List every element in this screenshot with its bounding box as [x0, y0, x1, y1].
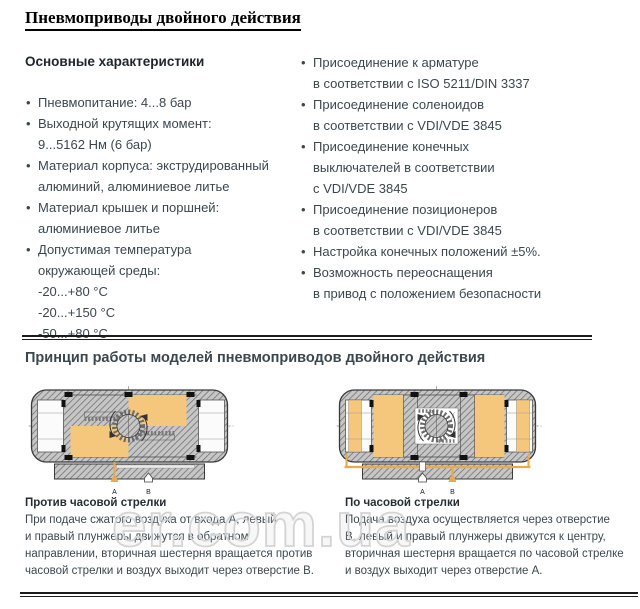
- characteristics-left-column: Основные характеристики Пневмопитание: 4…: [25, 52, 300, 344]
- bullet-item: Материал корпуса: экструдированный алюми…: [25, 155, 300, 197]
- characteristics-heading: Основные характеристики: [25, 54, 300, 69]
- separator-rule: [22, 335, 592, 340]
- bullet-item: Настройка конечных положений ±5%.: [300, 241, 625, 262]
- bullet-line: Материал крышек и поршней:: [38, 197, 300, 218]
- separator-rule: [20, 592, 638, 597]
- bullet-line: в соответствии с VDI/VDE 3845: [313, 115, 625, 136]
- bullet-line: -20...+150 °C: [38, 302, 300, 323]
- bullet-item: Выходной крутящих момент: 9...5162 Нм (6…: [25, 113, 300, 155]
- bullet-line: с VDI/VDE 3845: [313, 178, 625, 199]
- bullet-line: Допустимая температура: [38, 239, 300, 260]
- caption-line: вторичная шестерня вращается по часовой …: [345, 546, 637, 563]
- bullet-line: в соответствии с VDI/VDE 3845: [313, 220, 625, 241]
- bullet-line: Присоединение позиционеров: [313, 199, 625, 220]
- principle-heading: Принцип работы моделей пневмоприводов дв…: [25, 350, 485, 366]
- bullet-line: в привод с положением безопасности: [313, 283, 625, 304]
- caption-title: По часовой стрелки: [345, 497, 637, 509]
- caption-counterclockwise: Против часовой стрелки При подаче сжатог…: [25, 497, 333, 580]
- port-label-b: B: [146, 489, 151, 496]
- bullet-item: Возможность переоснащения в привод с пол…: [300, 262, 625, 304]
- caption-line: часовой стрелки и воздух выходит через о…: [25, 563, 333, 580]
- page-title-text: Пневмоприводы двойного действия: [25, 8, 301, 31]
- caption-line: В, левый и правый плунжеры движутся к це…: [345, 529, 637, 546]
- caption-line: направлении, вторичная шестерня вращаетс…: [25, 546, 333, 563]
- caption-line: и правый плунжеры движутся в обратном: [25, 529, 333, 546]
- characteristics-section: Основные характеристики Пневмопитание: 4…: [25, 52, 625, 344]
- bullet-item: Присоединение конечных выключателей в со…: [300, 136, 625, 199]
- bullet-line: в соответствии с ISO 5211/DIN 3337: [313, 73, 625, 94]
- caption-line: При подаче сжатого воздуха от входа А, л…: [25, 512, 333, 529]
- caption-clockwise: По часовой стрелки Подача воздуха осущес…: [345, 497, 637, 580]
- port-label-a: A: [112, 489, 117, 496]
- bullet-line: Настройка конечных положений ±5%.: [313, 241, 625, 262]
- bullet-line: окружающей среды:: [38, 260, 300, 281]
- bullet-line: -20...+80 °C: [38, 281, 300, 302]
- bullet-line: Присоединение к арматуре: [313, 52, 625, 73]
- bullet-item: Присоединение позиционеров в соответстви…: [300, 199, 625, 241]
- bullet-item: Допустимая температура окружающей среды:…: [25, 239, 300, 344]
- bullet-item: Материал крышек и поршней: алюминиевое л…: [25, 197, 300, 239]
- bullet-item: Присоединение к арматуре в соответствии …: [300, 52, 625, 94]
- bullet-line: алюминий, алюминиевое литье: [38, 176, 300, 197]
- caption-line: Подача воздуха осуществляется через отве…: [345, 512, 637, 529]
- bullet-line: Выходной крутящих момент:: [38, 113, 300, 134]
- characteristics-right-column: Присоединение к арматуре в соответствии …: [300, 52, 625, 344]
- characteristics-left-list: Пневмопитание: 4...8 бар Выходной крутящ…: [25, 92, 300, 344]
- bullet-line: 9...5162 Нм (6 бар): [38, 134, 300, 155]
- page-title: Пневмоприводы двойного действия: [25, 8, 301, 31]
- bullet-line: выключателей в соответствии: [313, 157, 625, 178]
- characteristics-right-list: Присоединение к арматуре в соответствии …: [300, 52, 625, 304]
- bullet-line: алюминиевое литье: [38, 218, 300, 239]
- bullet-line: Присоединение конечных: [313, 136, 625, 157]
- port-label-b: B: [450, 489, 455, 496]
- bullet-item: Пневмопитание: 4...8 бар: [25, 92, 300, 113]
- bullet-line: Пневмопитание: 4...8 бар: [38, 92, 300, 113]
- bullet-item: Присоединение соленоидов в соответствии …: [300, 94, 625, 136]
- bullet-line: Материал корпуса: экструдированный: [38, 155, 300, 176]
- caption-line: и воздух выходит через отверстие А.: [345, 563, 637, 580]
- port-label-a: A: [420, 489, 425, 496]
- actuator-diagram-clockwise: A B: [336, 386, 542, 498]
- bullet-line: Присоединение соленоидов: [313, 94, 625, 115]
- bullet-line: -50...+80 °C: [38, 323, 300, 344]
- actuator-diagram-counterclockwise: A B: [28, 386, 234, 498]
- bullet-line: Возможность переоснащения: [313, 262, 625, 283]
- caption-title: Против часовой стрелки: [25, 497, 333, 509]
